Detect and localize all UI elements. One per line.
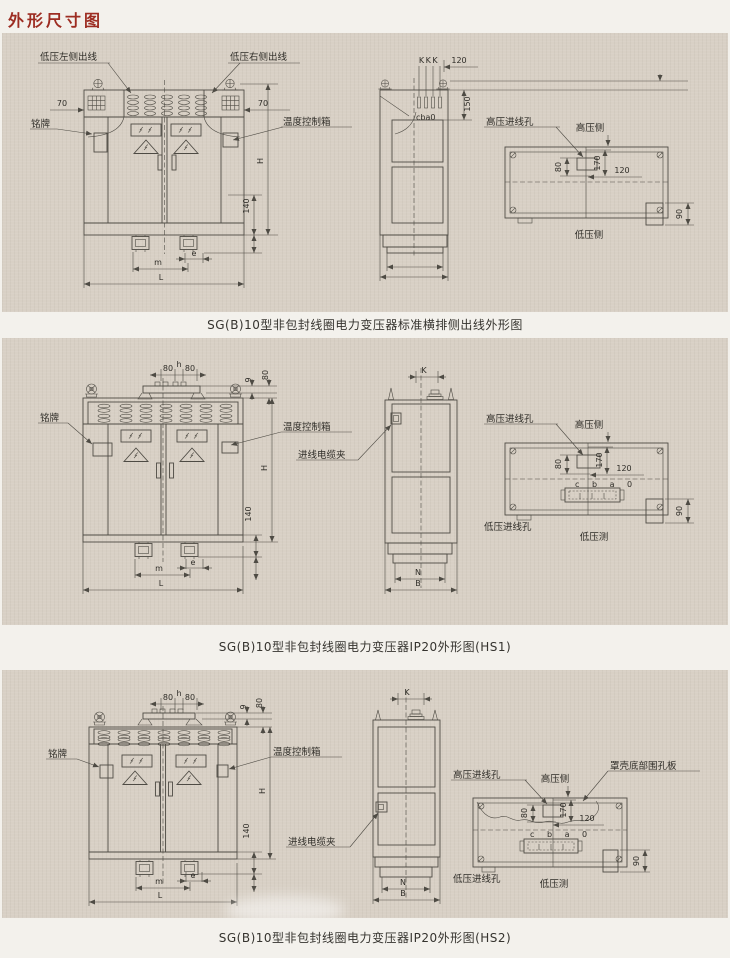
- dim-9: 9: [239, 704, 248, 709]
- lifting-lug-icon: [378, 80, 392, 89]
- corner-screw-icon: [657, 504, 663, 510]
- door-window-icon: [171, 124, 201, 136]
- dim-140: 140: [242, 823, 251, 838]
- warning-triangle-icon: [123, 771, 147, 785]
- door-handle: [169, 782, 173, 796]
- dim-h: h: [176, 689, 181, 698]
- dim-m: m: [154, 258, 162, 267]
- warning-triangle-icon: [180, 448, 204, 462]
- bushing-icon: [425, 97, 428, 108]
- p3-side-view: K N B: [373, 688, 440, 904]
- dim-80: 80: [554, 459, 563, 469]
- corner-screw-icon: [616, 803, 622, 809]
- door-handle: [170, 463, 174, 478]
- p1-front-view: 铭牌 温度控制箱 低压左侧出线 低压右侧出线 70 70 H 140 e: [30, 51, 352, 288]
- dim-h: h: [176, 360, 181, 369]
- dim-120: 120: [616, 464, 631, 473]
- hv-side-label: 高压侧: [576, 122, 605, 134]
- lv-left-outlet-label: 低压左侧出线: [40, 51, 98, 63]
- jack-pad-icon: [132, 235, 149, 252]
- scan-smudge: [225, 896, 345, 918]
- dim-170: 170: [559, 802, 568, 817]
- dim-90: 90: [675, 506, 684, 516]
- temp-box-label: 温度控制箱: [283, 421, 331, 433]
- dim-80: 80: [261, 370, 270, 380]
- hv-hole-label: 高压进线孔: [486, 116, 534, 128]
- dim-90: 90: [675, 209, 684, 219]
- dim-K: K: [404, 688, 410, 697]
- door-handle: [157, 463, 161, 478]
- dim-e: e: [192, 249, 197, 258]
- nameplate-label: 铭牌: [40, 412, 60, 424]
- p1-plan-view: 高压进线孔 80 170 120 高压侧 低压侧 90: [484, 116, 694, 241]
- bushing-icon: [432, 97, 435, 108]
- temp-box-label: 温度控制箱: [273, 746, 321, 758]
- corner-grille-icon: [88, 96, 105, 110]
- jack-pad-icon: [181, 542, 198, 559]
- dim-H: H: [260, 465, 269, 471]
- panel-1-drawing: 铭牌 温度控制箱 低压左侧出线 低压右侧出线 70 70 H 140 e: [0, 36, 730, 312]
- panel-1-caption: SG(B)10型非包封线圈电力变压器标准横排侧出线外形图: [0, 312, 730, 338]
- warning-triangle-icon: [177, 771, 201, 785]
- p3-front-view: 80 h 80 9 80: [46, 689, 378, 906]
- corner-screw-icon: [510, 152, 516, 158]
- corner-screw-icon: [510, 448, 516, 454]
- nameplate-label: 铭牌: [31, 118, 51, 130]
- p2-front-view: 80 h 80 9 80: [38, 360, 391, 594]
- corner-screw-icon: [657, 152, 663, 158]
- dim-120: 120: [579, 814, 594, 823]
- panel-3-caption: SG(B)10型非包封线圈电力变压器IP20外形图(HS2): [0, 918, 730, 958]
- dim-m: m: [155, 877, 163, 886]
- lifting-lug-icon: [436, 80, 450, 89]
- warning-triangle-icon: [124, 448, 148, 462]
- scanned-page: 外形尺寸图: [0, 0, 730, 958]
- dim-80: 80: [255, 698, 264, 708]
- corner-screw-icon: [510, 207, 516, 213]
- dim-L: L: [159, 579, 164, 588]
- dim-K: K: [421, 366, 427, 375]
- dim-80: 80: [520, 808, 529, 818]
- shell-plate-label: 罩壳底部围孔板: [610, 760, 677, 772]
- warning-triangle-icon: [134, 140, 158, 154]
- dim-120: 120: [451, 56, 466, 65]
- bushing-icon: [439, 97, 442, 108]
- bushing-icon: [418, 97, 421, 108]
- dim-e: e: [191, 558, 196, 567]
- jack-pad-icon: [136, 860, 153, 877]
- cable-clamp-label: 进线电缆夹: [288, 836, 336, 848]
- dim-H: H: [258, 788, 267, 794]
- jack-pad-icon: [135, 542, 152, 559]
- hv-side-label: 高压侧: [575, 419, 604, 431]
- roof-busbar-platform: [143, 386, 200, 393]
- roof-busbar-platform: [143, 713, 195, 719]
- panel-2-drawing: 80 h 80 9 80: [0, 338, 730, 625]
- cable-clamp-label: 进线电缆夹: [298, 449, 346, 461]
- dim-170: 170: [593, 155, 602, 170]
- hv-hole-label: 高压进线孔: [486, 413, 534, 425]
- lifting-lug-icon: [93, 712, 106, 725]
- dim-170: 170: [595, 452, 604, 467]
- dim-140: 140: [242, 198, 251, 213]
- dim-80: 80: [185, 364, 195, 373]
- door-window-icon: [131, 124, 161, 136]
- dim-140: 140: [244, 506, 253, 521]
- hv-side-label: 高压侧: [541, 773, 570, 785]
- lv-right-outlet-label: 低压右侧出线: [230, 51, 288, 63]
- nameplate-label: 铭牌: [48, 748, 68, 760]
- corner-screw-icon: [616, 856, 622, 862]
- dim-m: m: [155, 564, 163, 573]
- p2-plan-view: 高压进线孔 80 170 120 高压侧 c b a 0 低压: [484, 413, 694, 543]
- dim-L: L: [159, 273, 164, 282]
- lifting-lug-icon: [85, 384, 98, 397]
- phase-label-cba0: cba0: [416, 113, 435, 122]
- nameplate-rect: [100, 765, 113, 778]
- lv-hole-label: 低压进线孔: [453, 873, 501, 885]
- dim-80: 80: [554, 162, 563, 172]
- door-window-icon: [122, 755, 152, 767]
- dim-70-right: 70: [258, 99, 268, 108]
- lv-hole-label: 低压进线孔: [484, 521, 532, 533]
- warning-triangle-icon: [174, 140, 198, 154]
- dim-70-left: 70: [57, 99, 67, 108]
- hv-hole-label: 高压进线孔: [453, 769, 501, 781]
- dim-90: 90: [632, 856, 641, 866]
- lifting-lug-icon: [222, 79, 238, 90]
- dim-e: e: [191, 871, 196, 880]
- temp-box-label: 温度控制箱: [283, 116, 331, 128]
- dim-N: N: [400, 878, 406, 887]
- dim-150: 150: [463, 96, 472, 111]
- corner-screw-icon: [657, 207, 663, 213]
- p3-plan-view: 高压进线孔 高压侧 罩壳底部围孔板 80 170 120 c b a 0: [451, 760, 700, 890]
- corner-screw-icon: [657, 448, 663, 454]
- dim-80: 80: [163, 693, 173, 702]
- corner-screw-icon: [510, 504, 516, 510]
- dim-9: 9: [244, 377, 253, 382]
- lifting-lug-icon: [90, 79, 106, 90]
- lv-side-label: 低压侧: [575, 229, 604, 241]
- p2-side-view: K N B: [385, 366, 457, 594]
- temp-control-box-rect: [217, 765, 228, 777]
- dim-H: H: [256, 158, 265, 164]
- door-window-icon: [121, 430, 151, 442]
- nameplate-rect: [94, 133, 107, 152]
- lv-busbar-strip: [565, 488, 620, 502]
- lv-side-label: 低压测: [580, 531, 609, 543]
- door-handle: [158, 155, 162, 170]
- nameplate-rect: [93, 443, 112, 456]
- door-handle: [172, 155, 176, 170]
- corner-grille-icon: [222, 96, 239, 110]
- lv-side-label: 低压测: [540, 878, 569, 890]
- dim-80: 80: [185, 693, 195, 702]
- page-title: 外形尺寸图: [8, 7, 103, 31]
- dim-B: B: [400, 889, 406, 898]
- p1-side-view: cba0 KKK 120 150: [378, 56, 688, 281]
- door-window-icon: [176, 755, 206, 767]
- door-handle: [156, 782, 160, 796]
- dim-N: N: [415, 568, 421, 577]
- dim-B: B: [415, 579, 421, 588]
- panel-2-caption: SG(B)10型非包封线圈电力变压器IP20外形图(HS1): [0, 625, 730, 670]
- corner-screw-icon: [478, 856, 484, 862]
- dim-80: 80: [163, 364, 173, 373]
- phase-letters: c b a 0: [530, 830, 592, 839]
- dim-120: 120: [614, 166, 629, 175]
- lifting-lug-icon: [224, 712, 237, 725]
- inlet-cable-clamp-rect: [391, 413, 401, 424]
- door-window-icon: [177, 430, 207, 442]
- dim-L: L: [158, 891, 163, 900]
- terminal-label-kkk: KKK: [419, 56, 439, 65]
- panel-3-drawing: 80 h 80 9 80: [0, 670, 730, 918]
